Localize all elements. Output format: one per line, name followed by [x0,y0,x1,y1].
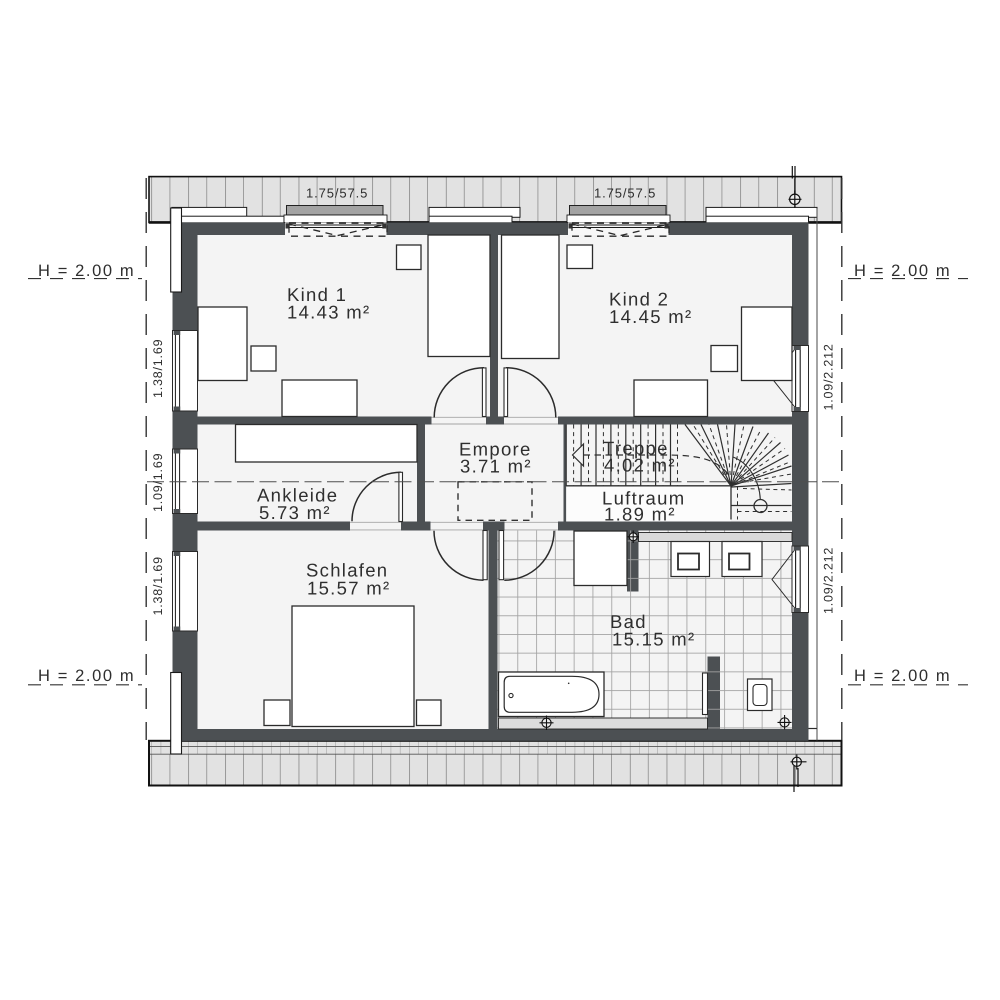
svg-text:5.73 m²: 5.73 m² [259,502,331,523]
svg-text:H = 2.00 m: H = 2.00 m [38,262,135,280]
svg-text:15.57 m²: 15.57 m² [307,578,390,599]
svg-text:14.45 m²: 14.45 m² [609,306,692,327]
svg-text:1.09/2.212: 1.09/2.212 [822,547,836,614]
svg-text:1.09/1.69: 1.09/1.69 [151,453,165,512]
svg-text:1.38/1.69: 1.38/1.69 [151,339,165,398]
svg-text:1.75/57.5: 1.75/57.5 [594,186,656,201]
svg-text:H = 2.00 m: H = 2.00 m [38,667,135,685]
svg-text:1.09/2.212: 1.09/2.212 [822,343,836,410]
svg-text:15.15 m²: 15.15 m² [612,629,695,650]
svg-text:1.38/1.69: 1.38/1.69 [151,556,165,615]
svg-text:H = 2.00 m: H = 2.00 m [854,667,951,685]
svg-text:H = 2.00 m: H = 2.00 m [854,262,951,280]
svg-text:4.02 m²: 4.02 m² [604,455,676,476]
svg-text:3.71 m²: 3.71 m² [460,456,532,477]
svg-text:1.89 m²: 1.89 m² [604,504,676,525]
svg-text:14.43 m²: 14.43 m² [287,302,370,323]
svg-text:1.75/57.5: 1.75/57.5 [306,186,368,201]
